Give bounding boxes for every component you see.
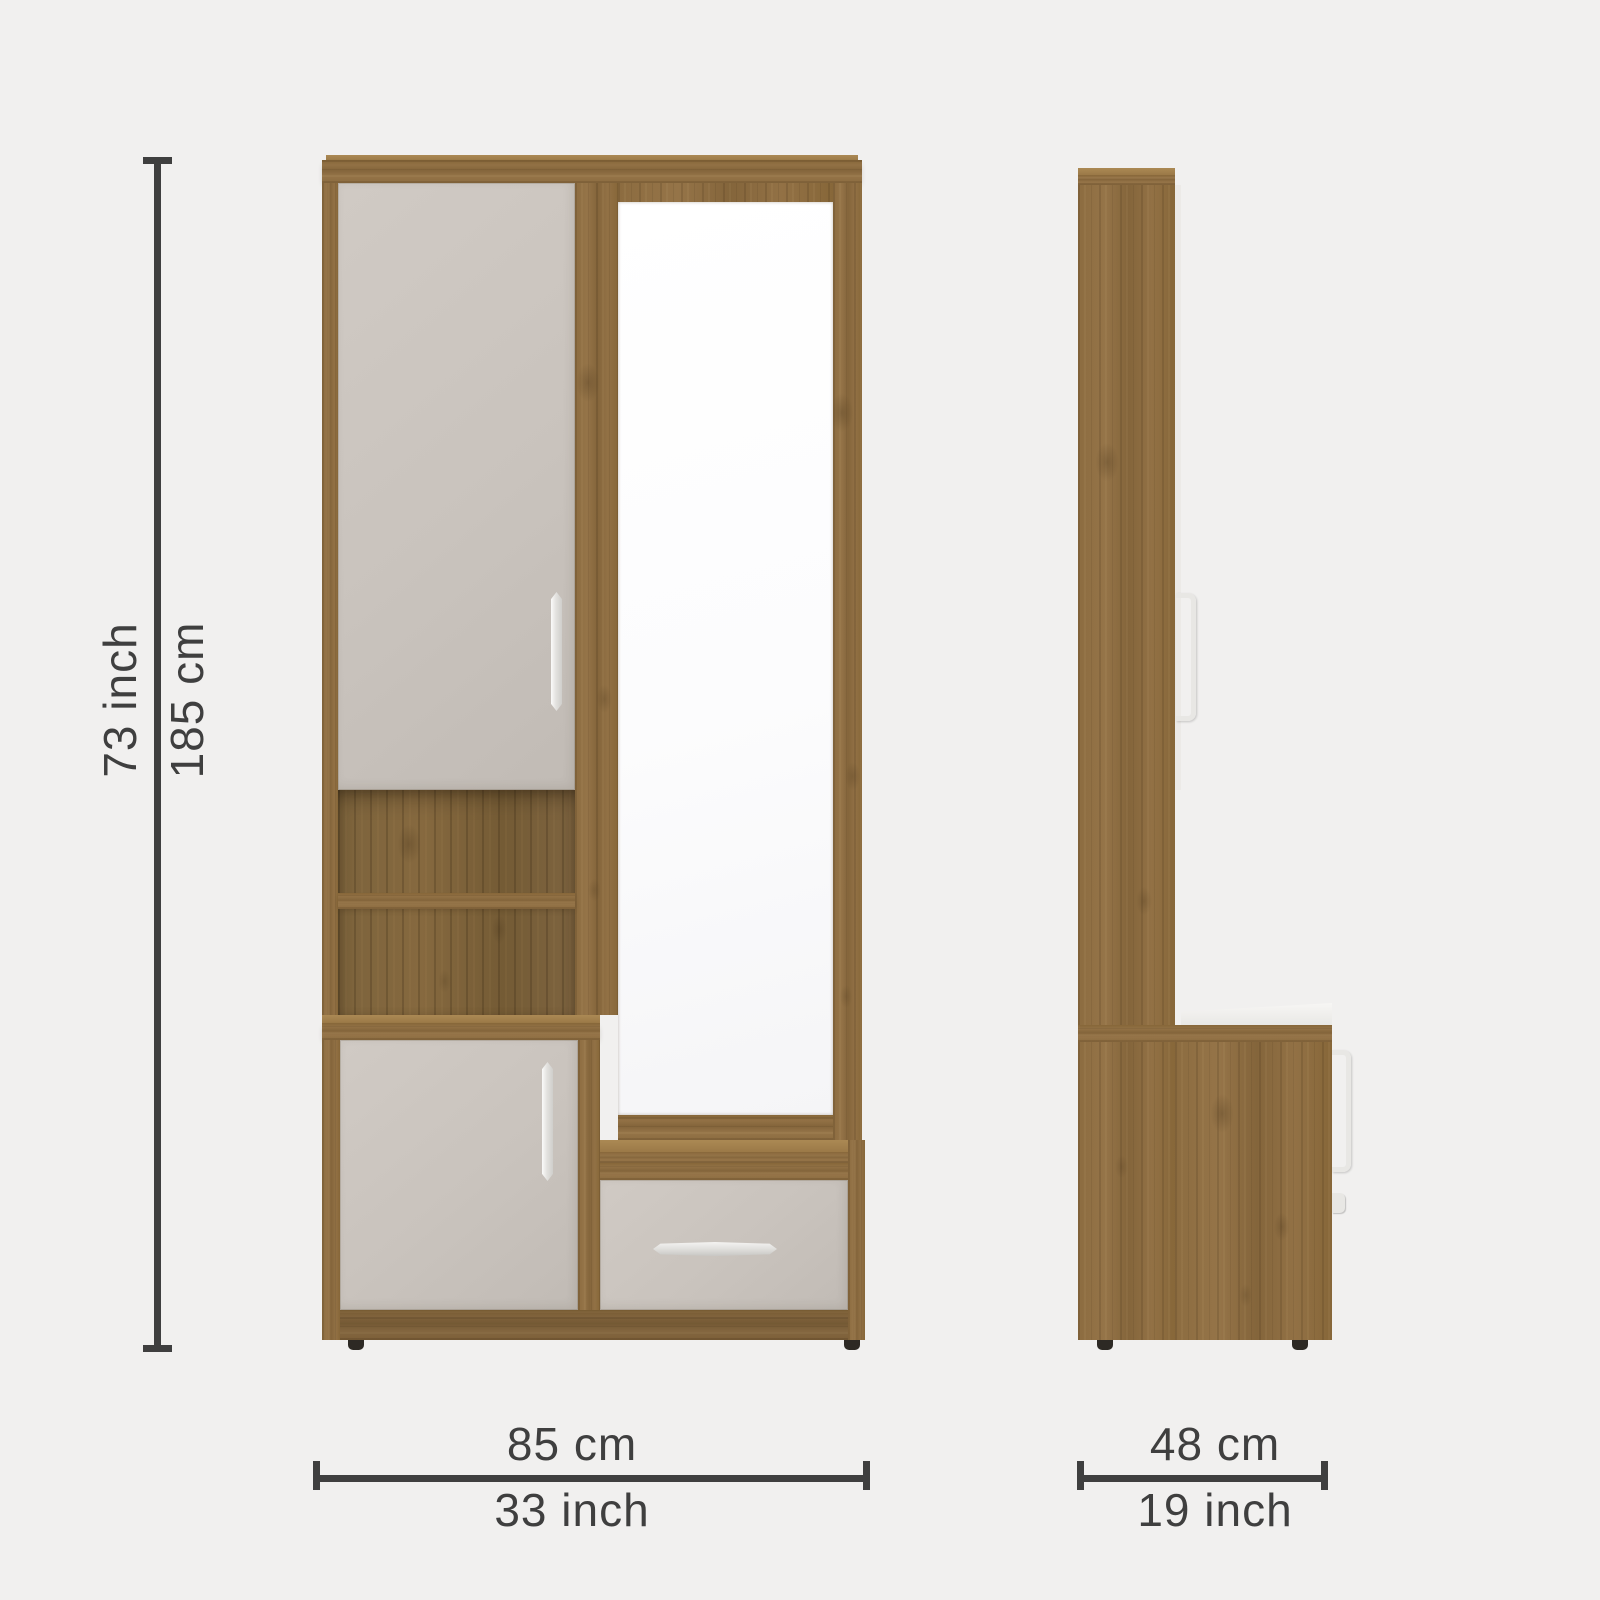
side-drawer-handle-tab (1332, 1193, 1345, 1213)
width-dimension-line (313, 1475, 870, 1482)
side-foot-right (1292, 1340, 1308, 1350)
width-dimension-cap-right (863, 1461, 870, 1490)
height-dimension-cap-top (143, 157, 172, 164)
mirror (618, 202, 833, 1115)
lower-left-stile (322, 1040, 340, 1340)
upper-cabinet-door (338, 183, 575, 790)
side-tall-panel (1078, 185, 1175, 1340)
depth-dimension-cap-left (1077, 1461, 1084, 1490)
upper-door-handle (551, 592, 562, 711)
height-label-inch: 73 inch (97, 622, 143, 777)
dressing-tabletop-surface (600, 1140, 865, 1152)
side-top-cap-surface (1078, 168, 1175, 175)
dressing-tabletop-edge (600, 1152, 865, 1163)
mirror-frame-top (618, 183, 833, 202)
depth-label-inch: 19 inch (1137, 1487, 1292, 1533)
mirror-frame-bottom (618, 1115, 833, 1140)
drawer-handle (653, 1242, 777, 1256)
side-foot-left (1097, 1340, 1113, 1350)
side-lower-handle (1332, 1050, 1351, 1172)
depth-dimension-cap-right (1321, 1461, 1328, 1490)
lower-cabinet-top-board (322, 1023, 600, 1040)
plinth (340, 1310, 848, 1340)
shelf-board (338, 893, 575, 909)
side-upper-handle (1176, 593, 1196, 721)
drawer-top-rail (600, 1163, 848, 1180)
side-tabletop (1181, 1003, 1332, 1025)
width-label-cm: 85 cm (507, 1421, 637, 1467)
side-cabinet-top-band (1078, 1025, 1332, 1042)
side-cabinet-body (1175, 1042, 1332, 1340)
height-dimension-cap-bottom (143, 1345, 172, 1352)
product-dimension-diagram: 185 cm 73 inch (0, 0, 1600, 1600)
lower-cabinet-top-surface (322, 1015, 600, 1023)
width-dimension-cap-left (313, 1461, 320, 1490)
lower-right-stile (848, 1140, 865, 1340)
top-board (322, 160, 862, 183)
mirror-frame-right (833, 183, 862, 1140)
width-label-inch: 33 inch (494, 1487, 649, 1533)
height-dimension-line (154, 157, 161, 1352)
lower-mid-stile (578, 1040, 600, 1310)
depth-label-cm: 48 cm (1150, 1421, 1280, 1467)
center-stile (575, 183, 618, 1015)
front-foot-left (348, 1340, 364, 1350)
left-stile (322, 183, 338, 1015)
lower-door-handle (542, 1062, 553, 1181)
side-top-cap (1078, 175, 1175, 185)
depth-dimension-line (1077, 1475, 1328, 1482)
front-foot-right (844, 1340, 860, 1350)
height-label-cm: 185 cm (164, 622, 210, 779)
